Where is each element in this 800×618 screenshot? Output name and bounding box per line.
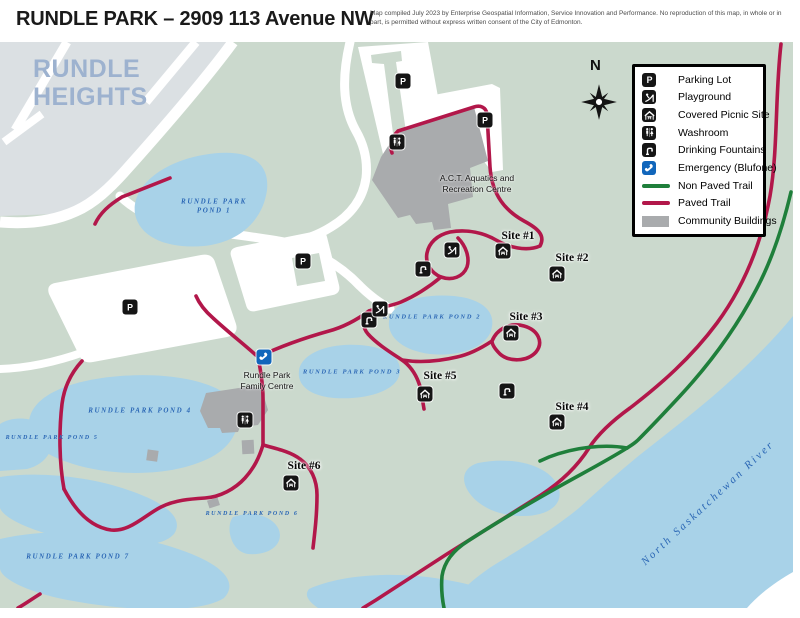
legend-item-label: Washroom — [678, 127, 728, 139]
parking-icon: P — [642, 73, 670, 87]
picnic-icon — [642, 108, 670, 122]
legend-item-label: Covered Picnic Site — [678, 109, 770, 121]
map-page: RUNDLE PARK – 2909 113 Avenue NW Map com… — [0, 0, 800, 618]
legend-item-label: Community Buildings — [678, 215, 777, 227]
blufone-icon — [642, 161, 670, 175]
fountain-icon — [642, 143, 670, 157]
legend: PParking LotPlaygroundCovered Picnic Sit… — [632, 64, 766, 237]
nonpaved-line — [642, 184, 670, 188]
legend-item: Washroom — [642, 125, 756, 141]
legend-item: Covered Picnic Site — [642, 107, 756, 123]
compass-north-label: N — [590, 57, 601, 74]
compass-rose-icon — [580, 83, 618, 121]
legend-item: Emergency (Blufone) — [642, 160, 756, 176]
neighbourhood-label: RUNDLE HEIGHTS — [33, 56, 173, 111]
legend-item-label: Emergency (Blufone) — [678, 162, 777, 174]
legend-item-label: Playground — [678, 91, 731, 103]
legend-item: PParking Lot — [642, 72, 756, 88]
legend-item-label: Non Paved Trail — [678, 180, 753, 192]
legend-item-label: Parking Lot — [678, 74, 731, 86]
legend-item-label: Paved Trail — [678, 197, 731, 209]
paved-line — [642, 201, 670, 205]
playground-icon — [642, 90, 670, 104]
svg-text:P: P — [646, 75, 652, 85]
legend-item: Community Buildings — [642, 213, 756, 229]
legend-item: Playground — [642, 89, 756, 105]
building-swatch — [642, 216, 670, 227]
washroom-icon — [642, 126, 670, 140]
legend-item: Paved Trail — [642, 195, 756, 211]
legend-item: Non Paved Trail — [642, 178, 756, 194]
legend-item: Drinking Fountains — [642, 142, 756, 158]
legend-item-label: Drinking Fountains — [678, 144, 766, 156]
